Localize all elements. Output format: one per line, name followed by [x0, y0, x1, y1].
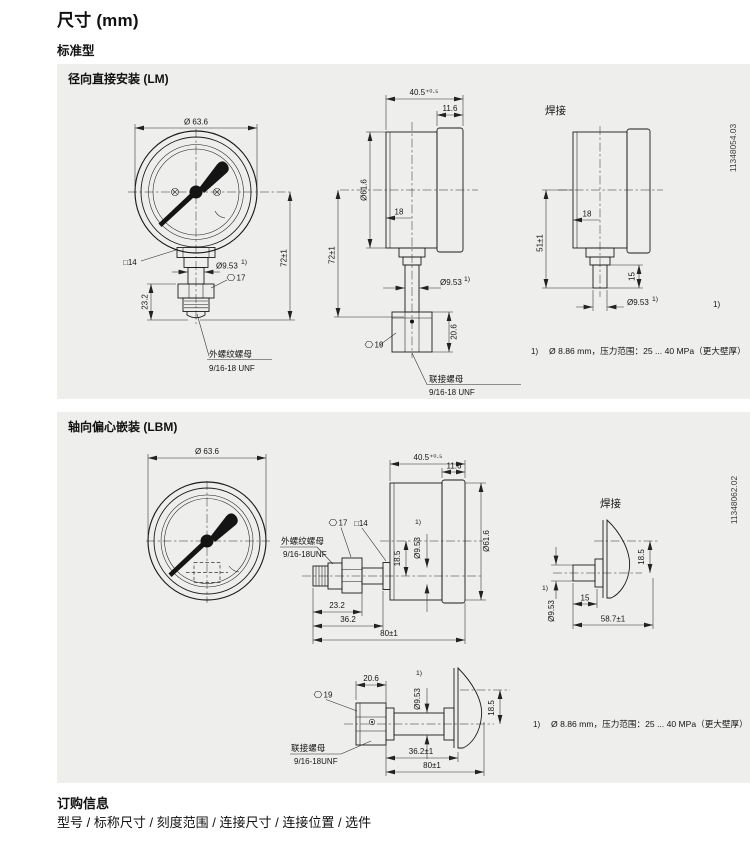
- dim-label-total-height-side: 72±1: [328, 246, 337, 264]
- footnote-ref: 1): [464, 276, 470, 283]
- label-coupling-nut-spec: 9/16-18 UNF: [429, 388, 475, 397]
- dim-label-len-36-bottom: 36.2±1: [409, 747, 434, 756]
- lbm-weld-view: 焊接 1) Ø9.53 15 58.7±1: [542, 497, 660, 629]
- dim-label-square-flats: □14: [354, 519, 368, 528]
- dim-label-eccentricity-weld: 18.5: [637, 549, 646, 565]
- hex-af-symbol-icon: [227, 275, 235, 281]
- drawing-id: 11348062.02: [729, 476, 739, 525]
- pointer-needle: [159, 161, 229, 227]
- dim-label-eccentricity: 18.5: [393, 550, 402, 566]
- section-title-lm: 径向直接安装 (LM): [68, 70, 169, 87]
- dim-label-weld-stem-dia: Ø9.53: [627, 298, 649, 307]
- dim-label-hex-17: 17: [339, 519, 348, 528]
- lbm-bottom-view: 19 20.6 1) Ø9.53 18.5 36.2±1 80±1 联接: [290, 668, 510, 776]
- footnote-ref: 1): [542, 585, 548, 592]
- scale-end-mark: [215, 211, 225, 218]
- dim-label-thread-length: 23.2: [141, 294, 150, 310]
- dim-label-stem-diameter: Ø9.53: [216, 262, 238, 271]
- dim-label-hex-19: 19: [324, 691, 333, 700]
- label-male-thread-spec: 9/16-18 UNF: [209, 364, 255, 373]
- dim-label-front-diameter: Ø 63.6: [195, 447, 220, 456]
- lbm-front-view: Ø 63.6 外螺纹螺母 9/16-18UNF: [146, 447, 333, 603]
- page-subtitle: 标准型: [57, 40, 95, 59]
- dim-label-total-80: 80±1: [380, 629, 398, 638]
- footnote-text: Ø 8.86 mm，压力范围：25 ... 40 MPa（更大壁厚）: [549, 345, 746, 356]
- drawing-id: 11348054.03: [728, 124, 738, 173]
- dim-label-stem-diameter: Ø9.53: [413, 537, 422, 559]
- weld-version-label: 焊接: [600, 497, 621, 510]
- dim-label-weld-height: 51±1: [536, 234, 545, 252]
- section-axial-lbm: Ø 63.6 外螺纹螺母 9/16-18UNF: [57, 412, 750, 783]
- lm-front-view: Ø 63.6 □14 Ø9.53 1) 17 23.2 72±1: [123, 118, 295, 374]
- footnote-ref: 1): [416, 670, 422, 677]
- dim-label-weld-stem-dia: Ø9.53: [547, 600, 556, 622]
- label-coupling-nut: 联接螺母: [429, 373, 464, 384]
- hex-af-symbol-icon: [314, 692, 322, 698]
- ordering-info-line: 型号 / 标称尺寸 / 刻度范围 / 连接尺寸 / 连接位置 / 选件: [57, 812, 371, 831]
- dim-label-bezel-depth: 11.6: [443, 104, 459, 113]
- dim-label-front-diameter: Ø 63.6: [184, 118, 209, 127]
- dim-label-len-23: 23.2: [329, 601, 345, 610]
- label-male-thread-nut: 外螺纹螺母: [209, 348, 252, 359]
- dim-label-weld-total: 58.7±1: [601, 615, 626, 624]
- footnote-marker: 1): [533, 720, 540, 729]
- dim-label-nut-length: 20.6: [450, 324, 459, 340]
- dim-label-weld-stem-length: 15: [581, 594, 590, 603]
- footnote-ref: 1): [241, 259, 247, 266]
- page-title: 尺寸 (mm): [57, 6, 139, 31]
- label-male-thread-spec: 9/16-18UNF: [283, 550, 327, 559]
- label-coupling-nut: 联接螺母: [291, 742, 326, 753]
- hex-af-symbol-icon: [329, 520, 337, 526]
- section-radial-lm: Ø 63.6 □14 Ø9.53 1) 17 23.2 72±1: [57, 64, 750, 399]
- dim-label-weld-stem-length: 15: [628, 272, 637, 281]
- scale-end-mark: [229, 566, 239, 572]
- dim-label-case-diameter: Ø61.6: [482, 530, 491, 552]
- dim-label-case-depth: 40.5⁺⁰·⁵: [414, 453, 443, 462]
- datasheet-page: 尺寸 (mm) 标准型: [0, 0, 750, 846]
- lm-dimension-drawing: Ø 63.6 □14 Ø9.53 1) 17 23.2 72±1: [57, 64, 750, 399]
- ordering-info-heading: 订购信息: [57, 793, 109, 812]
- dim-label-total-height: 72±1: [280, 249, 289, 267]
- dim-label-stem-offset-weld: 18: [583, 210, 592, 219]
- dim-label-hex-17: 17: [237, 274, 246, 283]
- dim-label-case-depth: 40.5⁺⁰·⁵: [410, 88, 439, 97]
- footnote-text: Ø 8.86 mm，压力范围：25 ... 40 MPa（更大壁厚）: [551, 718, 748, 729]
- footnote-ref: 1): [415, 519, 421, 526]
- footnote-ref-standalone: 1): [713, 300, 720, 309]
- dim-label-stem-diameter-side: Ø9.53: [440, 278, 462, 287]
- dim-label-bezel-depth: 11.6: [447, 462, 463, 471]
- dim-label-square-flats: □14: [123, 258, 137, 267]
- dim-label-case-diameter: Ø61.6: [360, 179, 369, 201]
- dim-label-nut-length: 20.6: [363, 674, 379, 683]
- dim-label-stem-offset: 18: [395, 208, 404, 217]
- pointer-needle: [169, 513, 238, 577]
- section-title-lbm: 轴向偏心嵌装 (LBM): [68, 418, 177, 435]
- weld-version-label: 焊接: [545, 104, 566, 117]
- dim-label-total-80-bottom: 80±1: [423, 761, 441, 770]
- lm-weld-view: 焊接 51±1 18 15: [536, 104, 721, 311]
- footnote-ref: 1): [652, 296, 658, 303]
- dim-label-len-36: 36.2: [340, 615, 356, 624]
- footnote-marker: 1): [531, 347, 538, 356]
- label-male-thread-nut: 外螺纹螺母: [281, 535, 324, 546]
- dim-label-eccentricity-bottom: 18.5: [487, 700, 496, 716]
- lbm-side-view: 17 □14 1) Ø9.53 18.5 Ø61.6 40.5⁺⁰·⁵: [302, 453, 491, 644]
- dim-label-stem-dia-bottom: Ø9.53: [413, 688, 422, 710]
- lm-side-view: 40.5⁺⁰·⁵ 11.6 Ø61.6 72±1 18 Ø9.53 1): [328, 88, 522, 397]
- label-coupling-nut-spec: 9/16-18UNF: [294, 757, 338, 766]
- hex-af-symbol-icon: [365, 342, 373, 348]
- lbm-dimension-drawing: Ø 63.6 外螺纹螺母 9/16-18UNF: [57, 412, 750, 783]
